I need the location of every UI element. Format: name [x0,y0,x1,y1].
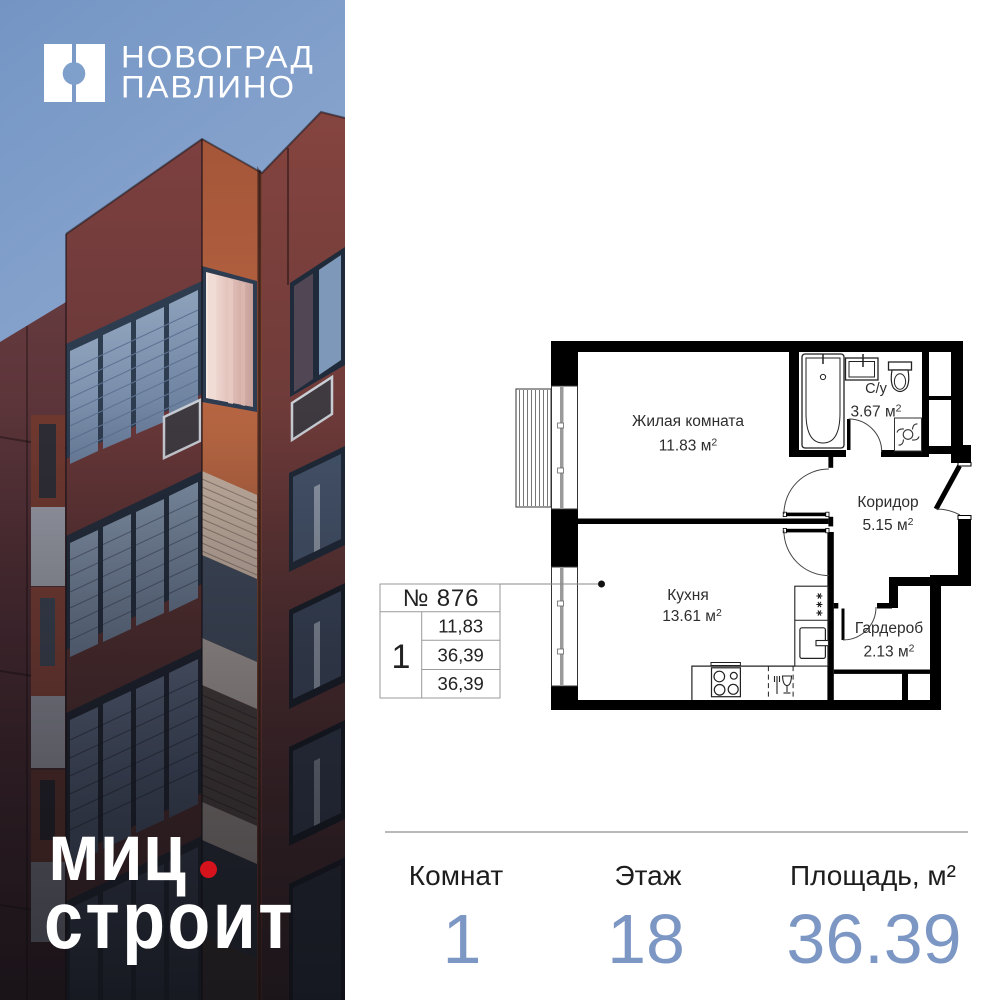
svg-text:С/у: С/у [865,381,888,397]
svg-text:11,83: 11,83 [438,616,483,637]
svg-text:36,39: 36,39 [438,673,484,694]
svg-text:3.67 м2: 3.67 м2 [851,403,902,421]
svg-text:11.83 м2: 11.83 м2 [659,437,718,455]
svg-text:36,39: 36,39 [438,645,484,666]
svg-text:№ 876: № 876 [403,585,479,612]
svg-text:13.61 м2: 13.61 м2 [662,607,722,625]
svg-text:Жилая комната: Жилая комната [632,413,744,430]
svg-text:Кухня: Кухня [667,587,708,604]
svg-text:Коридор: Коридор [857,494,918,511]
svg-text:1: 1 [392,638,411,676]
svg-text:Гардероб: Гардероб [855,620,923,637]
svg-text:2.13 м2: 2.13 м2 [864,643,915,661]
svg-text:5.15 м2: 5.15 м2 [863,516,914,534]
